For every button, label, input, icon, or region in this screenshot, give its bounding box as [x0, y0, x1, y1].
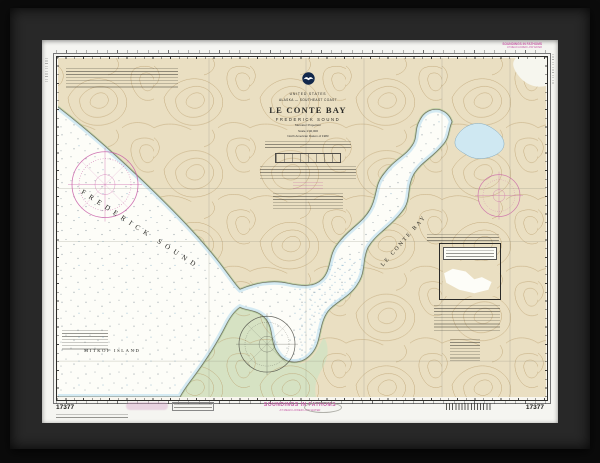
margin-note-box [172, 402, 214, 411]
soundings-note: SOUNDINGS IN FATHOMS AT MEAN LOWER LOW W… [200, 402, 400, 412]
chart-map [58, 58, 546, 397]
framed-chart-photo: UNITED STATES ALASKA — SOUTHEAST COAST L… [0, 0, 600, 463]
soundings-note-line2: AT MEAN LOWER LOW WATER [200, 408, 400, 412]
agency-seal-stamp [304, 402, 342, 413]
latitude-ruler-top [56, 50, 546, 53]
edge-note-left [45, 58, 48, 84]
magenta-stamp [126, 402, 168, 410]
soundings-note-top: SOUNDINGS IN FATHOMS AT MEAN LOWER LOW W… [502, 42, 542, 49]
border-ticks-bottom [57, 398, 547, 400]
chart-neatline: UNITED STATES ALASKA — SOUTHEAST COAST L… [56, 56, 548, 401]
edition-note [56, 414, 128, 420]
chart-number-left: 17377 [56, 404, 74, 411]
border-ticks-left [57, 57, 59, 400]
picture-frame: UNITED STATES ALASKA — SOUTHEAST COAST L… [10, 8, 590, 449]
border-ticks-right [545, 57, 547, 400]
chart-number-right: 17377 [526, 404, 544, 411]
mat-board: UNITED STATES ALASKA — SOUTHEAST COAST L… [42, 40, 558, 423]
margin-barcode [446, 403, 492, 410]
edge-note-right [552, 54, 555, 84]
border-ticks-top [57, 57, 547, 59]
